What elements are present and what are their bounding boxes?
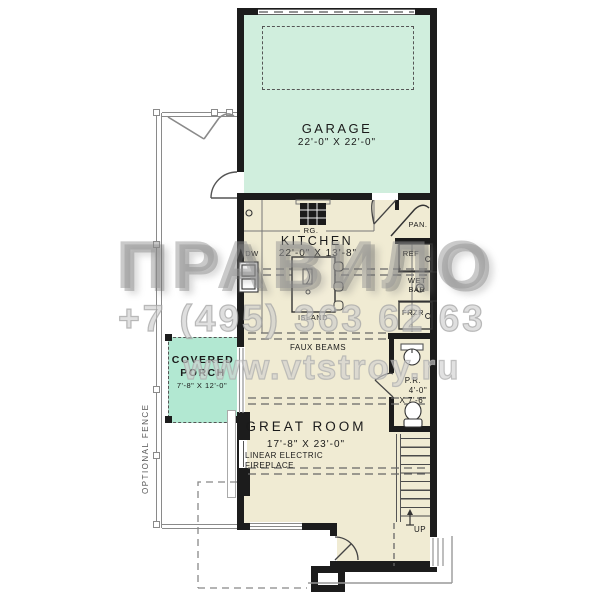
- up-arrow-icon: [406, 509, 414, 525]
- optional-fence-label: OPTIONAL FENCE: [141, 402, 150, 494]
- kitchen-name-label: KITCHEN: [281, 235, 353, 248]
- great-room-dims-label: 17'-8" X 23'-0": [267, 440, 345, 450]
- porch-name-label-1: COVERED: [172, 355, 234, 366]
- porch-step-lines: [308, 536, 452, 583]
- dishwasher-label: DW: [245, 250, 259, 258]
- gate: [168, 114, 234, 139]
- faux-beams-label: FAUX BEAMS: [290, 344, 346, 352]
- fireplace-label-2: FIREPLACE: [245, 462, 294, 470]
- pr-door: [375, 373, 393, 397]
- garage-side-door: [211, 172, 237, 198]
- up-label: UP: [414, 526, 426, 534]
- wet-bar-label-2: BAR: [409, 286, 426, 294]
- pantry-label: PAN.: [409, 221, 428, 229]
- pr-dims-label-2: X 7'-6": [400, 397, 427, 405]
- wet-bar-label-1: WET: [408, 277, 426, 285]
- island-label: ISLAND: [298, 314, 328, 322]
- pr-toilet-icon: [404, 402, 422, 427]
- great-room-name-label: GREAT ROOM: [245, 420, 366, 434]
- patio-dashed-outline: [198, 482, 307, 588]
- refrigerator-label: REF: [403, 250, 420, 258]
- pr-name-label: P.R.: [405, 377, 422, 385]
- garage-name-label: GARAGE: [302, 122, 373, 135]
- freezer-label: FRZR: [402, 309, 424, 317]
- plan-detail-lines: [0, 0, 600, 600]
- fireplace-label-1: LINEAR ELECTRIC: [245, 452, 323, 460]
- garage-entry-door: [372, 200, 396, 224]
- island-icon: [292, 257, 335, 312]
- kitchen-dims-label: 22'-0" X 13'-8": [279, 249, 357, 259]
- front-door: [335, 537, 358, 560]
- floor-plan-canvas: GARAGE 22'-0" X 22'-0" RG. KITCHEN 22'-0…: [0, 0, 600, 600]
- bar-stools-icon: [334, 262, 343, 310]
- garage-dims-label: 22'-0" X 22'-0": [298, 138, 376, 148]
- range-icon: [296, 200, 330, 225]
- pr-sink-icon: [401, 344, 423, 365]
- porch-dims-label: 7'-8" X 12'-0": [177, 382, 227, 390]
- pr-dims-label-1: 4'-0": [409, 387, 427, 395]
- porch-name-label-2: PORCH: [180, 368, 225, 379]
